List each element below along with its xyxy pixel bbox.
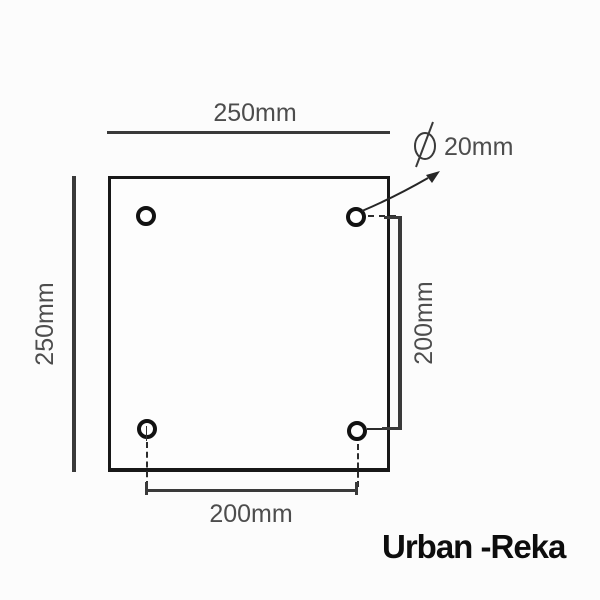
dimension-line-hole-spacing-vertical: [398, 216, 402, 430]
dimension-tick-right-top: [384, 216, 402, 219]
hole-bottom-right: [347, 421, 367, 441]
diameter-symbol-slash: [416, 122, 433, 167]
dimension-tick-bottom-right: [355, 482, 358, 495]
hole-top-left: [136, 206, 156, 226]
center-line-bottom-left-hole: [146, 426, 147, 441]
dimension-tick-bottom-left: [145, 482, 148, 495]
extension-line-bottom-right-hole-vertical: [357, 444, 359, 487]
dimension-label-hole-diameter: 20mm: [444, 132, 513, 162]
dimension-tick-right-bottom: [382, 427, 402, 430]
extension-line-bottom-left-hole: [146, 442, 148, 487]
dimension-label-hole-spacing-horizontal: 200mm: [191, 499, 311, 529]
dimension-line-plate-height: [72, 176, 76, 472]
brand-text: Urban -Reka: [382, 528, 565, 566]
dimension-line-plate-width: [107, 131, 390, 134]
dimension-line-hole-spacing-horizontal: [145, 489, 358, 492]
technical-drawing-canvas: 250mm 250mm 200mm 200mm 20mm Urban -Reka: [0, 0, 600, 600]
hole-top-right: [346, 207, 366, 227]
diameter-symbol-icon: [415, 133, 435, 159]
dimension-label-plate-width: 250mm: [195, 98, 315, 128]
hole-bottom-left: [137, 419, 157, 439]
dimension-label-hole-spacing-vertical: 200mm: [409, 263, 439, 383]
diameter-leader-arrowhead-icon: [426, 171, 440, 183]
dimension-label-plate-height: 250mm: [30, 264, 60, 384]
